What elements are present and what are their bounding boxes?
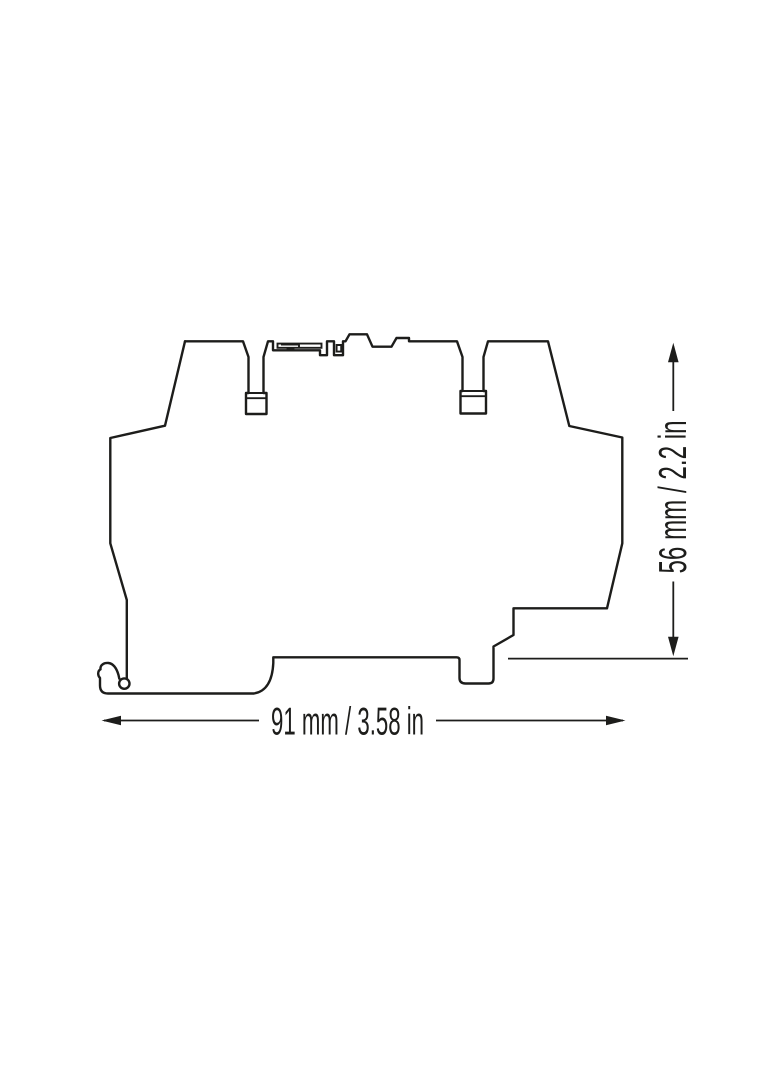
dimensional-outline-drawing: 91 mm / 3.58 in 56 mm / 2.2 in (0, 0, 784, 1066)
vertical-dimension: 56 mm / 2.2 in (508, 343, 695, 659)
din-foot-release-hole (119, 678, 129, 688)
terminal-slot-cross-lines (246, 391, 486, 398)
arrow-right-icon (606, 716, 626, 726)
arrow-down-icon (668, 637, 679, 657)
arrow-left-icon (102, 716, 122, 726)
device-outline (98, 334, 622, 693)
device-body-outline (98, 334, 622, 693)
height-dimension-label: 56 mm / 2.2 in (652, 421, 695, 574)
arrow-up-icon (668, 343, 679, 363)
width-dimension-label: 91 mm / 3.58 in (271, 701, 424, 744)
horizontal-dimension: 91 mm / 3.58 in (102, 701, 626, 744)
device-left-edge (110, 341, 185, 678)
drawing-canvas: 91 mm / 3.58 in 56 mm / 2.2 in (0, 0, 784, 1066)
